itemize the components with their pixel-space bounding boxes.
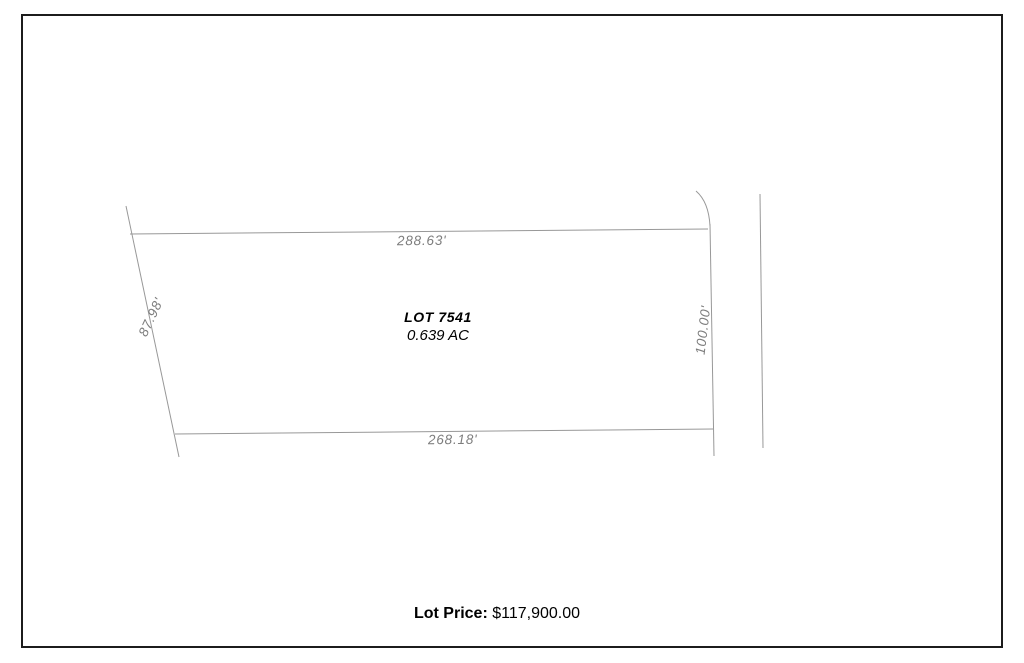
survey-page: 288.63' 268.18' 87.98' 100.00' LOT 7541 … [0, 0, 1024, 663]
dimension-north: 288.63' [397, 233, 447, 248]
lot-info: LOT 7541 0.639 AC [404, 309, 472, 344]
lot-name: LOT 7541 [404, 309, 472, 325]
lot-boundary-drawing [0, 0, 1024, 663]
lot-price-label: Lot Price: [414, 605, 488, 622]
corner-curve [696, 191, 710, 226]
road-edge-line [760, 194, 763, 448]
dimension-south: 268.18' [428, 432, 478, 447]
lot-price-value: $117,900.00 [492, 605, 580, 622]
lot-area: 0.639 AC [404, 327, 472, 344]
east-boundary-line [710, 224, 714, 456]
lot-price: Lot Price: $117,900.00 [414, 605, 580, 623]
